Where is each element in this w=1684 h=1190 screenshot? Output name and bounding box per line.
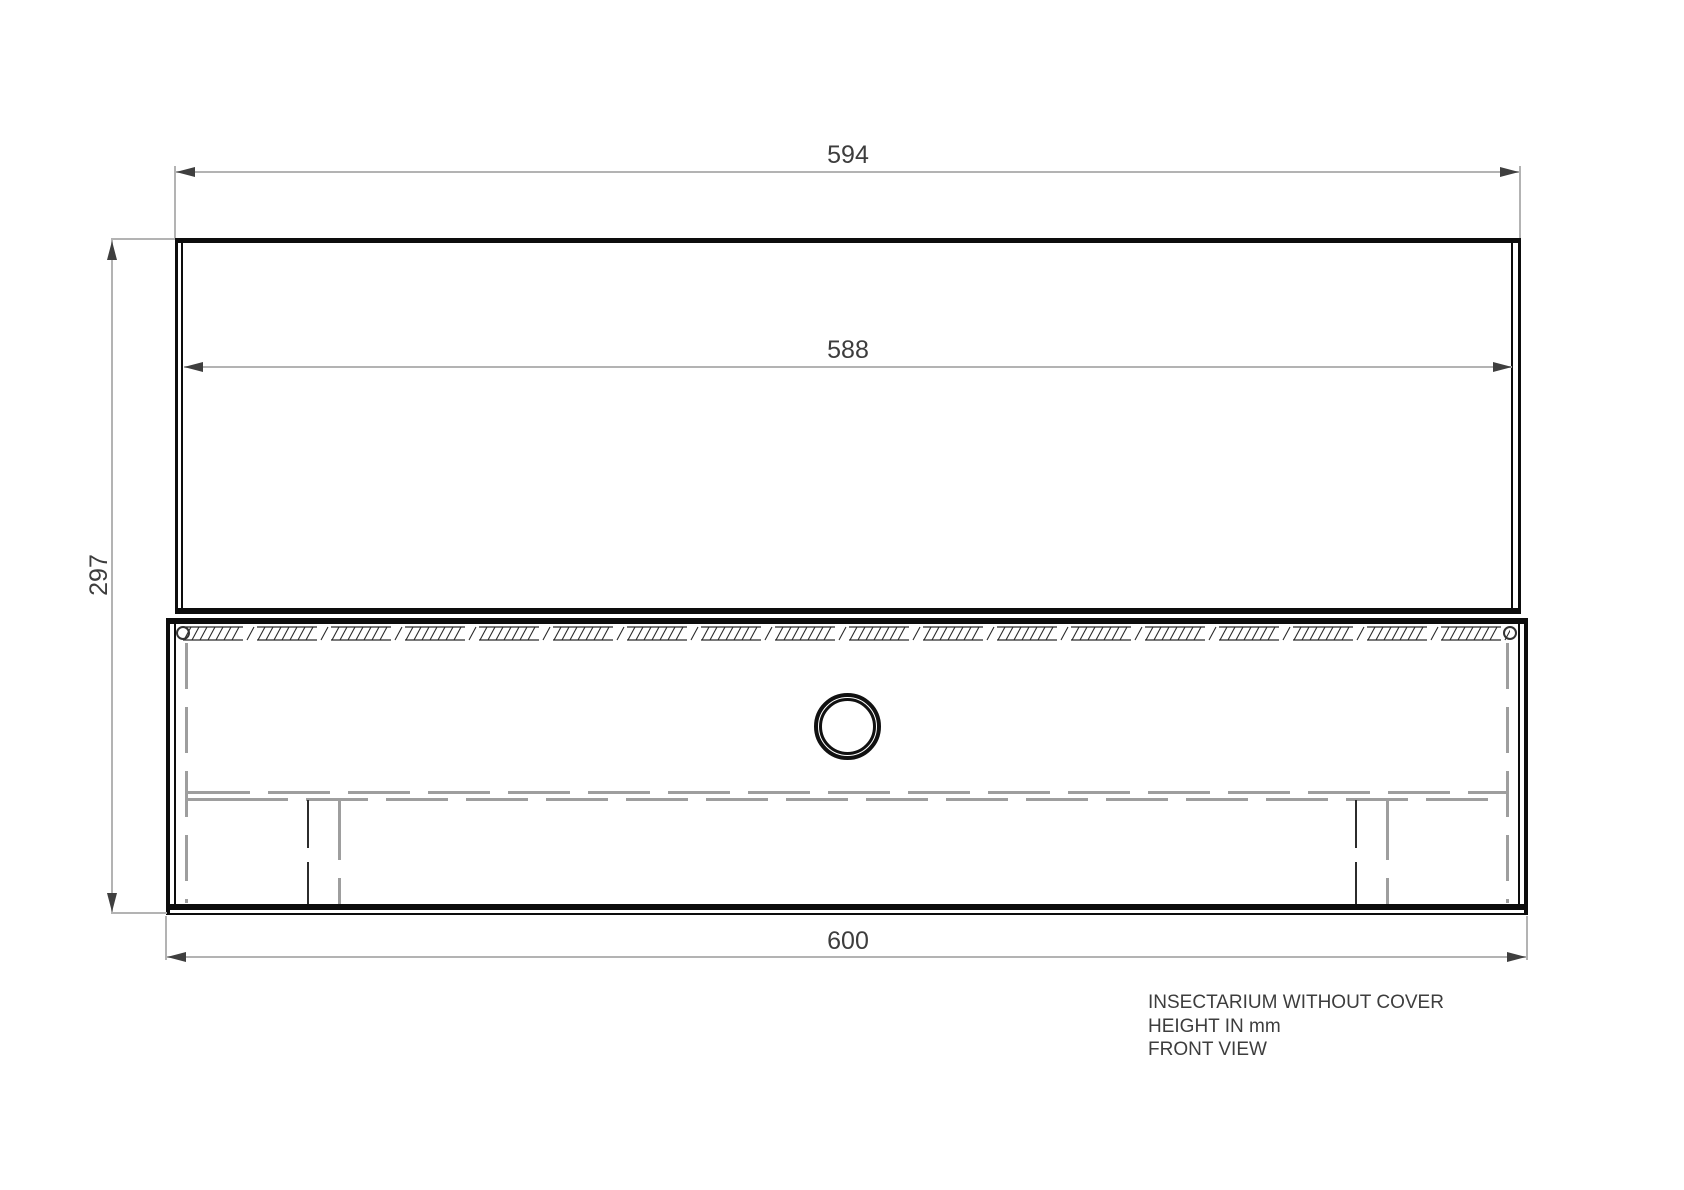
upper-box-top-edge xyxy=(175,238,1521,243)
upper-box-left-inner-edge xyxy=(181,243,183,614)
dim-588-arrow-left xyxy=(184,362,203,372)
lower-box-right-edge xyxy=(1524,618,1528,913)
lower-box-bottom-base-line xyxy=(166,913,1528,915)
note-units-line: HEIGHT IN mm xyxy=(1148,1015,1444,1039)
hidden-right-partition-line-a xyxy=(1355,800,1357,904)
dim-600-line xyxy=(166,956,1527,958)
vent-hole-inner-ring xyxy=(819,698,876,755)
upper-box-right-edge xyxy=(1518,238,1521,614)
dim-594-arrow-left xyxy=(176,167,195,177)
hidden-right-wall-line xyxy=(1506,643,1509,903)
dim-297-arrow-bottom xyxy=(107,893,117,912)
drawing-notes: INSECTARIUM WITHOUT COVER HEIGHT IN mm F… xyxy=(1148,991,1444,1062)
dim-594-line xyxy=(175,171,1520,173)
upper-box-right-inner-edge xyxy=(1511,243,1513,614)
hidden-left-partition-line-a xyxy=(307,800,309,904)
upper-box-bottom-edge xyxy=(177,608,1519,614)
dim-297-extension-top xyxy=(111,238,175,240)
seal-hatch-strip xyxy=(183,626,1510,641)
dim-588-line xyxy=(184,366,1512,368)
dim-297-arrow-top xyxy=(107,241,117,260)
note-view-line: FRONT VIEW xyxy=(1148,1038,1444,1062)
dim-297-label: 297 xyxy=(86,525,112,625)
dim-594-arrow-right xyxy=(1500,167,1519,177)
hidden-shelf-line-lower xyxy=(188,798,1508,801)
technical-drawing-sheet: 594 588 297 600 INSECTARIUM WITHOUT COVE… xyxy=(0,0,1684,1190)
upper-box-left-edge xyxy=(175,238,178,614)
vent-hole-circle xyxy=(814,693,881,760)
hidden-right-partition-line-b xyxy=(1386,800,1389,904)
dim-588-label: 588 xyxy=(798,337,898,363)
dim-594-extension-right xyxy=(1519,166,1521,238)
seal-strip-left-end-cap xyxy=(176,626,190,640)
dim-600-extension-right xyxy=(1526,916,1528,960)
lower-box-bottom-edge xyxy=(166,904,1528,910)
dim-297-extension-bottom xyxy=(111,912,167,914)
hidden-left-partition-line-b xyxy=(338,800,341,904)
dim-588-arrow-right xyxy=(1493,362,1512,372)
lower-box-left-edge xyxy=(166,618,170,913)
dim-600-arrow-right xyxy=(1507,952,1526,962)
lower-box-top-edge xyxy=(166,618,1528,624)
hidden-left-wall-line xyxy=(185,643,188,903)
hidden-shelf-line-upper xyxy=(188,791,1508,794)
dim-600-arrow-left xyxy=(167,952,186,962)
lower-box-left-inner-edge xyxy=(174,624,176,907)
lower-box-right-inner-edge xyxy=(1518,624,1520,907)
seal-strip-right-end-cap xyxy=(1503,626,1517,640)
dim-594-label: 594 xyxy=(798,142,898,168)
note-title-line: INSECTARIUM WITHOUT COVER xyxy=(1148,991,1444,1015)
dim-600-label: 600 xyxy=(798,928,898,954)
